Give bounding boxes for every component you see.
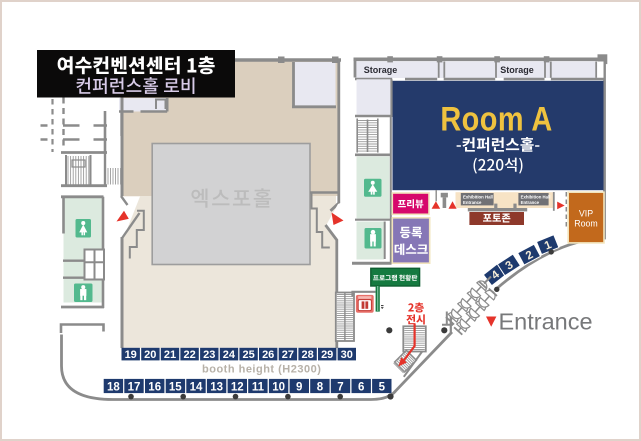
svg-text:25: 25 <box>242 349 254 361</box>
svg-text:13: 13 <box>210 381 223 393</box>
svg-text:Entrance: Entrance <box>463 200 482 205</box>
svg-text:15: 15 <box>169 381 182 393</box>
svg-text:7: 7 <box>337 381 343 393</box>
svg-text:17: 17 <box>128 381 141 393</box>
svg-text:Exhibition Hall: Exhibition Hall <box>463 194 493 199</box>
svg-text:29: 29 <box>321 349 333 361</box>
svg-text:Room: Room <box>574 219 597 229</box>
svg-text:VIP: VIP <box>579 209 593 219</box>
svg-text:6: 6 <box>358 381 364 393</box>
svg-text:26: 26 <box>262 349 274 361</box>
svg-text:24: 24 <box>223 349 236 361</box>
svg-text:11: 11 <box>252 381 265 393</box>
svg-text:21: 21 <box>164 349 176 361</box>
svg-text:20: 20 <box>144 349 156 361</box>
svg-text:Room A: Room A <box>440 99 552 138</box>
svg-text:12: 12 <box>231 381 244 393</box>
svg-text:8: 8 <box>317 381 324 393</box>
svg-text:Storage: Storage <box>500 65 534 75</box>
svg-text:18: 18 <box>107 381 120 393</box>
svg-text:Entrance: Entrance <box>521 200 540 205</box>
svg-text:10: 10 <box>272 381 285 393</box>
svg-text:14: 14 <box>190 381 203 393</box>
svg-text:Entrance: Entrance <box>499 309 593 335</box>
svg-text:28: 28 <box>301 349 313 361</box>
svg-text:9: 9 <box>296 381 302 393</box>
svg-text:booth height (H2300): booth height (H2300) <box>202 364 321 376</box>
svg-text:5: 5 <box>379 381 386 393</box>
svg-text:27: 27 <box>282 349 294 361</box>
svg-text:Exhibition Hall: Exhibition Hall <box>521 194 551 199</box>
svg-text:23: 23 <box>203 349 215 361</box>
svg-text:16: 16 <box>148 381 161 393</box>
svg-text:22: 22 <box>183 349 195 361</box>
svg-text:19: 19 <box>125 349 137 361</box>
svg-text:Storage: Storage <box>364 65 398 75</box>
svg-text:30: 30 <box>341 349 353 361</box>
